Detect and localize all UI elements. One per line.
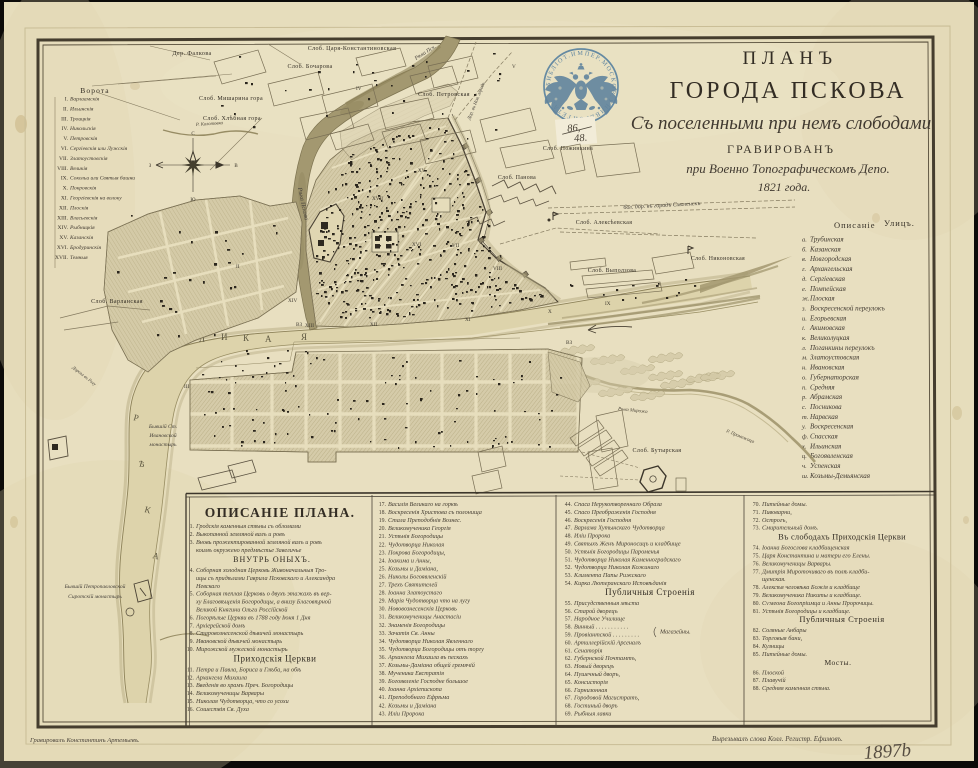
svg-text:59.: 59. [565, 633, 573, 639]
svg-text:Ворота: Ворота [80, 86, 109, 95]
svg-text:Петровскія: Петровскія [69, 136, 98, 142]
svg-text:Старой дворецъ: Старой дворецъ [574, 608, 618, 615]
svg-text:72.: 72. [753, 518, 761, 524]
svg-text:Ивановская: Ивановская [809, 364, 844, 372]
svg-text:3.: 3. [190, 540, 195, 546]
svg-text:Дер. Фалкова: Дер. Фалкова [172, 51, 211, 57]
svg-text:IV: IV [356, 86, 362, 92]
svg-text:Климента Папы Рижскаго: Климента Папы Рижскаго [573, 572, 646, 579]
svg-text:Іоанна Архіепископа: Іоанна Архіепископа [387, 686, 442, 693]
svg-text:30.: 30. [379, 607, 387, 613]
svg-text:Слоб. Алексѣевская: Слоб. Алексѣевская [576, 219, 633, 226]
svg-text:14.: 14. [187, 691, 195, 697]
svg-text:22.: 22. [379, 542, 387, 548]
svg-text:60.: 60. [565, 640, 573, 646]
svg-text:Святыхъ Женъ Мироносицъ и клад: Святыхъ Женъ Мироносицъ и кладбище [574, 541, 681, 548]
svg-text:А: А [265, 334, 272, 344]
svg-text:Чудотворца Николая Кожинаго: Чудотворца Николая Кожинаго [574, 564, 659, 571]
svg-text:Чудотворца Богородицы отъ торг: Чудотворца Богородицы отъ торгу [388, 646, 484, 653]
svg-text:Покровскія: Покровскія [69, 186, 97, 192]
svg-text:е.: е. [802, 286, 807, 293]
svg-text:Козьмы и Даміана: Козьмы и Даміана [387, 702, 436, 709]
svg-text:Сиротскій монастырь: Сиротскій монастырь [68, 593, 122, 600]
svg-text:55.: 55. [565, 601, 573, 607]
svg-text:17.: 17. [379, 502, 387, 508]
svg-text:Ильинская: Ильинская [809, 442, 841, 450]
svg-text:Плоская: Плоская [809, 295, 835, 303]
svg-text:Слоб. Бочарова: Слоб. Бочарова [287, 63, 332, 70]
svg-text:в.: в. [802, 256, 807, 263]
svg-text:Сѵмеона Богопріимца и Анны Про: Сѵмеона Богопріимца и Анны Пророчицы. [762, 600, 874, 607]
svg-text:5.: 5. [190, 592, 195, 598]
svg-text:Зачатія Св. Анны: Зачатія Св. Анны [388, 630, 435, 637]
svg-text:IX.: IX. [61, 176, 69, 182]
svg-text:Мученика Евстратія: Мученика Евстратія [387, 670, 444, 677]
svg-text:Николы Богоявленскій: Николы Богоявленскій [387, 573, 447, 580]
svg-text:Средняя: Средняя [810, 383, 835, 391]
svg-text:74.: 74. [753, 546, 761, 552]
svg-text:82.: 82. [753, 628, 761, 634]
svg-text:XV: XV [418, 168, 426, 174]
svg-text:Приходскія Церкви: Приходскія Церкви [234, 653, 317, 663]
svg-text:Казанская: Казанская [809, 245, 841, 253]
svg-text:1821 года.: 1821 года. [758, 180, 811, 194]
svg-text:Стала Преподобнія Вознес.: Стала Преподобнія Вознес. [388, 517, 461, 524]
svg-text:58.: 58. [565, 625, 573, 631]
svg-text:Ю: Ю [190, 198, 195, 203]
svg-text:VI.: VI. [61, 146, 69, 152]
svg-text:56.: 56. [565, 609, 573, 615]
svg-text:Архангельская: Архангельская [809, 265, 853, 273]
svg-text:Вырезывалъ слова Колл. Реги: Вырезывалъ слова Колл. Регистр. Ефимовъ. [712, 735, 843, 743]
svg-text:III: III [184, 384, 189, 390]
svg-text:70.: 70. [753, 502, 761, 508]
svg-text:при Военно Топографическомъ Де: при Военно Топографическомъ Депо. [686, 161, 889, 176]
svg-text:45.: 45. [565, 510, 573, 516]
svg-text:Іоанна Богослова кладбищенская: Іоанна Богослова кладбищенская [761, 545, 850, 552]
svg-text:Старовознесенской дѣвичей мо: Старовознесенской дѣвичей монастырь [196, 630, 304, 637]
svg-text:40.: 40. [379, 687, 387, 693]
svg-text:Плоскія: Плоскія [69, 205, 89, 211]
svg-text:44.: 44. [565, 502, 573, 508]
svg-text:Великолуцкая: Великолуцкая [810, 334, 850, 342]
svg-text:31.: 31. [379, 615, 387, 621]
svg-text:76.: 76. [753, 561, 761, 567]
svg-text:Никольскія: Никольскія [69, 126, 96, 132]
svg-text:7.: 7. [190, 623, 195, 629]
svg-text:ш.: ш. [802, 473, 809, 480]
svg-text:Богоявленская: Богоявленская [809, 452, 853, 460]
svg-text:37.: 37. [379, 663, 387, 669]
svg-text:Публичныя Строенія: Публичныя Строенія [605, 587, 695, 597]
svg-text:коимъ окружено предмѣстье З: коимъ окружено предмѣстье Завеличье [196, 547, 302, 554]
svg-text:Присудственныя мѣста: Присудственныя мѣста [573, 600, 639, 607]
svg-text:43.: 43. [379, 711, 387, 717]
svg-text:Воскресенія Христова съ полони: Воскресенія Христова съ полонища [388, 509, 482, 516]
svg-text:84.: 84. [753, 644, 761, 650]
svg-text:Слоб. Бутырская: Слоб. Бутырская [633, 447, 682, 454]
svg-text:Вновь прожектированной землян: Вновь прожектированной земляной валъ и р… [196, 539, 323, 546]
svg-text:Улицъ.: Улицъ. [884, 218, 915, 228]
svg-text:48.: 48. [574, 133, 588, 145]
svg-text:ц.: ц. [802, 453, 807, 460]
svg-text:Іоакима и Анны,: Іоакима и Анны, [387, 557, 432, 564]
svg-text:19.: 19. [379, 518, 387, 524]
svg-text:Преподобнаго Ефрѣма: Преподобнаго Ефрѣма [387, 694, 449, 701]
svg-text:ОПИСАНІЕ ПЛАНА.: ОПИСАНІЕ ПЛАНА. [205, 505, 355, 520]
svg-text:29.: 29. [379, 599, 387, 605]
svg-text:Сергіевскія или Лужскія: Сергіевскія или Лужскія [70, 146, 128, 152]
svg-text:Ивановской: Ивановской [148, 432, 176, 439]
svg-text:Златоустовская: Златоустовская [810, 354, 859, 362]
svg-text:Георгіевскія на волоку: Георгіевскія на волоку [69, 196, 122, 202]
svg-text:Острогъ,: Острогъ, [762, 517, 787, 524]
svg-text:Новый дворецъ: Новый дворецъ [573, 663, 615, 670]
svg-text:75.: 75. [753, 554, 761, 560]
svg-text:XVI: XVI [412, 242, 421, 248]
svg-text:монастырь: монастырь [148, 442, 177, 448]
svg-text:Мосты.: Мосты. [825, 658, 852, 667]
svg-text:Народное Училище: Народное Училище [573, 616, 625, 623]
svg-text:39.: 39. [379, 679, 387, 685]
svg-text:XV.: XV. [59, 235, 68, 241]
svg-text:V.: V. [63, 136, 68, 142]
svg-text:Трубинская: Трубинская [810, 236, 844, 244]
svg-text:Чудотворца Николая Каменноград: Чудотворца Николая Каменноградскаго [574, 556, 681, 563]
svg-text:Успенская: Успенская [810, 462, 841, 470]
svg-text:Выкопанной земляной валъ и: Выкопанной земляной валъ и ровъ [196, 531, 286, 538]
svg-text:Погорѣлые Церкви въ 1788 году: Погорѣлые Церкви въ 1788 году Іюня 1 Дня [195, 614, 311, 621]
svg-text:Златоустовскія: Златоустовскія [70, 156, 108, 162]
svg-text:Бывшій Ст.: Бывшій Ст. [148, 423, 177, 430]
svg-text:53.: 53. [565, 573, 573, 579]
svg-text:і.: і. [802, 325, 806, 332]
svg-text:Архангела Михаила: Архангела Михаила [195, 674, 247, 681]
svg-text:16.: 16. [187, 707, 195, 713]
svg-text:К: К [243, 333, 250, 343]
svg-text:Дмитрія Мироточиваго въ полѣ к: Дмитрія Мироточиваго въ полѣ кладби- [761, 568, 869, 575]
svg-text:Воскресенія Господня: Воскресенія Господня [574, 517, 631, 524]
svg-text:Губернаторская: Губернаторская [809, 373, 859, 381]
svg-text:Ивановской дѣвичей монастырь: Ивановской дѣвичей монастырь [195, 638, 282, 645]
svg-text:Казанскія: Казанскія [69, 235, 94, 241]
svg-text:Сошествія Св. Духа: Сошествія Св. Духа [196, 706, 249, 713]
svg-text:Сокольи или Святыя башни: Сокольи или Святыя башни [70, 175, 135, 182]
svg-text:20.: 20. [379, 526, 387, 532]
svg-text:Нововознесенскія Церковь: Нововознесенскія Церковь [387, 606, 457, 613]
svg-text:ГОРОДА ПСКОВА: ГОРОДА ПСКОВА [670, 78, 907, 104]
svg-text:Я: Я [301, 332, 307, 342]
svg-text:Чудотворца Николая Явленнаго: Чудотворца Николая Явленнаго [388, 638, 473, 645]
svg-text:Царя Константина и матери его: Царя Константина и матери его Елены. [761, 553, 870, 560]
svg-text:48.: 48. [565, 534, 573, 540]
svg-text:р.: р. [801, 394, 807, 401]
svg-text:XII.: XII. [59, 205, 69, 211]
svg-text:50.: 50. [565, 549, 573, 555]
svg-text:Марія Чудотворца что на лугу: Марія Чудотворца что на лугу [387, 598, 470, 605]
svg-text:IX: IX [605, 301, 611, 307]
svg-text:23.: 23. [379, 550, 387, 556]
svg-text:Губернской Почтамтъ,: Губернской Почтамтъ, [573, 655, 637, 662]
svg-text:36.: 36. [379, 655, 387, 661]
svg-text:Архангела Михаила въ пескахъ: Архангела Михаила въ пескахъ [387, 654, 469, 661]
svg-text:Слоб. Пожинкина: Слоб. Пожинкина [543, 145, 593, 152]
svg-text:Въ слободахъ Приходскія Церкви: Въ слободахъ Приходскія Церкви [778, 532, 906, 542]
svg-text:о.: о. [802, 374, 807, 381]
svg-text:Воскресенская: Воскресенская [810, 423, 853, 431]
svg-text:Кузницы: Кузницы [761, 643, 784, 650]
svg-text:Успѣнія Богородицы: Успѣнія Богородицы [388, 533, 443, 540]
svg-text:Слоб. Панова: Слоб. Панова [498, 174, 536, 181]
svg-text:73.: 73. [753, 526, 761, 532]
svg-text:Бывшій Петропавловской: Бывшій Петропавловской [64, 583, 126, 590]
svg-text:V: V [512, 64, 516, 70]
svg-text:Артиллерійскій Арсеналъ: Артиллерійскій Арсеналъ [573, 639, 642, 646]
svg-text:Бродуринскія: Бродуринскія [69, 244, 102, 251]
svg-text:Съ поселенными при немъ слобод: Съ поселенными при немъ слободами [631, 113, 932, 134]
svg-text:34.: 34. [379, 639, 387, 645]
svg-text:Козьмы-Даміана общей гремячій: Козьмы-Даміана общей гремячій [387, 662, 476, 669]
svg-text:Козьмы-Демьянская: Козьмы-Демьянская [809, 472, 870, 480]
svg-text:ицы съ придѣлами Гаврила Псков: ицы съ придѣлами Гаврила Псковскаго и Ал… [196, 575, 335, 582]
svg-text:ф.: ф. [802, 434, 809, 441]
svg-text:62.: 62. [565, 656, 573, 662]
svg-text:Спасо Преображенія Господня: Спасо Преображенія Господня [574, 509, 656, 516]
svg-text:Ильинскія: Ильинскія [69, 106, 94, 112]
svg-text:XI: XI [465, 317, 471, 323]
svg-text:Пушечный дворъ,: Пушечный дворъ, [573, 671, 621, 678]
svg-text:Гарнизонная: Гарнизонная [573, 687, 607, 694]
svg-text:Великомученицы Варвары: Великомученицы Варвары [196, 690, 264, 697]
svg-text:46.: 46. [565, 518, 573, 524]
svg-text:Слоб. Хлѣбная гора: Слоб. Хлѣбная гора [203, 115, 261, 122]
svg-text:ВНУТРЬ ОНЫХЪ.: ВНУТРЬ ОНЫХЪ. [233, 555, 311, 564]
svg-text:Варлаамскія: Варлаамскія [70, 97, 100, 103]
svg-text:8.: 8. [190, 631, 195, 637]
svg-text:ж.: ж. [802, 296, 810, 303]
svg-text:69.: 69. [565, 712, 573, 718]
svg-text:Слоб. Мишарина гора: Слоб. Мишарина гора [199, 95, 263, 102]
svg-text:79.: 79. [753, 593, 761, 599]
svg-text:38.: 38. [379, 671, 387, 677]
svg-text:ч.: ч. [802, 463, 807, 470]
svg-text:Слоб. Выползова: Слоб. Выползова [588, 267, 636, 274]
svg-text:Егорьевская: Егорьевская [809, 314, 846, 322]
svg-text:Торговыя бани,: Торговыя бани, [762, 635, 803, 642]
svg-text:Петра и Павла, Бориса и Глѣба,: Петра и Павла, Бориса и Глѣба, на обѣ [195, 666, 301, 673]
svg-text:Архіерейской домъ: Архіерейской домъ [195, 622, 246, 629]
svg-text:12.: 12. [187, 675, 195, 681]
svg-text:87.: 87. [753, 678, 761, 684]
svg-text:Соляные Анбары: Соляные Анбары [762, 627, 807, 634]
svg-text:Рыбницкія: Рыбницкія [69, 224, 95, 231]
svg-text:Сенаторія: Сенаторія [574, 647, 602, 654]
svg-text:Сергіевская: Сергіевская [810, 275, 845, 283]
svg-text:Публичныя Строенія: Публичныя Строенія [799, 614, 884, 624]
svg-text:Консисторія: Консисторія [573, 679, 608, 686]
svg-text:52.: 52. [565, 565, 573, 571]
svg-text:ГРАВИРОВАНЪ: ГРАВИРОВАНЪ [727, 142, 835, 156]
svg-text:Покрова Богородицы,: Покрова Богородицы, [387, 549, 446, 556]
svg-text:4.: 4. [190, 568, 195, 574]
svg-text:Средняя каменная стѣна.: Средняя каменная стѣна. [762, 685, 831, 692]
svg-text:Питейные домы.: Питейные домы. [761, 651, 807, 658]
svg-text:з.: з. [801, 305, 807, 312]
svg-text:XIII.: XIII. [57, 215, 68, 221]
svg-text:54.: 54. [565, 581, 573, 587]
svg-text:Винный . . . . . . . . . . .: Винный . . . . . . . . . . . [574, 624, 628, 631]
svg-text:Темныя: Темныя [70, 255, 88, 261]
svg-text:XI.: XI. [61, 196, 69, 202]
svg-text:м.: м. [801, 355, 808, 362]
svg-text:Козьмы и Даміана,: Козьмы и Даміана, [387, 565, 438, 572]
svg-text:л.: л. [801, 345, 807, 352]
svg-text:42.: 42. [379, 703, 387, 709]
svg-text:13.: 13. [187, 683, 195, 689]
svg-text:Рыбныя лавки: Рыбныя лавки [573, 711, 611, 718]
svg-text:Гродскія каменныя стѣны съ обл: Гродскія каменныя стѣны съ обломами [195, 523, 301, 530]
svg-text:Соборная холодная Церковь Живо: Соборная холодная Церковь Живоначальныя … [196, 567, 326, 574]
svg-text:Трехъ Святителей: Трехъ Святителей [388, 582, 438, 589]
svg-text:с.: с. [802, 404, 807, 411]
svg-text:X: X [548, 309, 552, 315]
svg-text:47.: 47. [565, 526, 573, 532]
svg-text:Посникова: Посникова [809, 403, 842, 411]
svg-text:Великомученицы Анастасіи: Великомученицы Анастасіи [388, 614, 461, 621]
svg-text:11.: 11. [187, 667, 195, 673]
svg-text:Гостиный дворъ: Гостиный дворъ [573, 703, 618, 710]
svg-text:71.: 71. [753, 510, 761, 516]
svg-text:Питейные домы.: Питейные домы. [761, 501, 807, 508]
svg-text:Плоской: Плоской [761, 669, 785, 676]
svg-text:Богоявленіе Господне большое: Богоявленіе Господне большое [387, 678, 468, 685]
svg-text:68.: 68. [565, 704, 573, 710]
svg-text:Спасская: Спасская [810, 433, 838, 441]
svg-text:Успѣнія Богородицы Пароменья: Успѣнія Богородицы Пароменья [574, 548, 660, 555]
svg-text:6.: 6. [190, 615, 195, 621]
svg-text:Акимовская: Акимовская [809, 324, 845, 332]
svg-text:86.: 86. [753, 670, 761, 676]
svg-text:Великія: Великія [70, 166, 88, 172]
svg-text:Троицкія: Троицкія [70, 116, 91, 122]
svg-text:Воскресенской переулокъ: Воскресенской переулокъ [810, 304, 885, 312]
svg-text:51.: 51. [565, 557, 573, 563]
svg-text:1897b: 1897b [863, 740, 912, 764]
svg-text:Новгородская: Новгородская [809, 255, 851, 263]
svg-text:у.: у. [801, 424, 806, 431]
svg-text:И: И [221, 332, 228, 342]
svg-text:67.: 67. [565, 696, 573, 702]
svg-text:Слоб. Никоновская: Слоб. Никоновская [691, 255, 745, 262]
svg-text:9.: 9. [190, 639, 195, 645]
svg-text:XIV: XIV [288, 298, 297, 304]
svg-text:2.: 2. [190, 532, 195, 538]
svg-text:41.: 41. [379, 695, 387, 701]
svg-text:ху Благовѣщенія Богородицы, а: ху Благовѣщенія Богородицы, а внизу Благ… [195, 599, 332, 606]
svg-text:85.: 85. [753, 652, 761, 658]
svg-text:Великомученика Георгія: Великомученика Георгія [388, 525, 451, 532]
svg-text:а.: а. [802, 237, 807, 244]
svg-text:78.: 78. [753, 585, 761, 591]
svg-text:IV.: IV. [62, 126, 69, 132]
svg-text:Іоанна Златоустаго: Іоанна Златоустаго [387, 590, 442, 597]
svg-text:Слоб. Царя-Константиновская: Слоб. Царя-Константиновская [308, 45, 397, 52]
svg-text:XII: XII [370, 322, 377, 328]
svg-text:18.: 18. [379, 510, 387, 516]
svg-text:Провіантской . . . . . . . . .: Провіантской . . . . . . . . . [573, 632, 639, 639]
svg-text:VIII: VIII [493, 266, 502, 272]
svg-text:ВЗ: ВЗ [566, 340, 572, 346]
svg-text:33.: 33. [379, 631, 387, 637]
svg-text:1.: 1. [190, 524, 195, 530]
svg-text:63.: 63. [565, 664, 573, 670]
svg-text:88.: 88. [753, 686, 761, 692]
svg-text:80.: 80. [753, 601, 761, 607]
svg-text:61.: 61. [565, 648, 573, 654]
svg-text:Городовой Магистратъ,: Городовой Магистратъ, [573, 695, 640, 702]
svg-text:Пивоварни,: Пивоварни, [761, 509, 792, 516]
svg-text:н.: н. [802, 365, 807, 372]
svg-text:Невскаго: Невскаго [195, 583, 220, 590]
svg-text:т.: т. [802, 414, 809, 421]
svg-text:Нарвская: Нарвская [809, 413, 838, 421]
svg-text:Плавучій: Плавучій [761, 677, 786, 684]
svg-text:к.: к. [802, 335, 807, 342]
svg-text:21.: 21. [379, 534, 387, 540]
svg-text:и.: и. [802, 315, 807, 322]
svg-text:Слоб. Петровская: Слоб. Петровская [418, 91, 470, 98]
svg-text:Помпейская: Помпейская [809, 285, 846, 293]
svg-text:Великой Княгини Ольги Россі: Великой Княгини Ольги Россійской [196, 607, 288, 614]
svg-text:II.: II. [63, 106, 69, 112]
svg-text:Слоб. Варланская: Слоб. Варланская [91, 298, 143, 305]
svg-text:66.: 66. [565, 688, 573, 694]
svg-text:Мирожской мужеской монастырь: Мирожской мужеской монастырь [195, 646, 288, 653]
svg-text:XVII.: XVII. [55, 255, 69, 261]
svg-text:VII: VII [452, 243, 459, 249]
svg-text:д.: д. [802, 276, 807, 283]
svg-text:Власьевскія: Власьевскія [70, 215, 98, 221]
svg-text:26.: 26. [379, 574, 387, 580]
svg-text:XVII: XVII [372, 196, 383, 202]
svg-text:83.: 83. [753, 636, 761, 642]
svg-text:10.: 10. [187, 647, 195, 653]
svg-text:Описаніе: Описаніе [834, 220, 876, 230]
svg-text:27.: 27. [379, 583, 387, 589]
svg-text:28.: 28. [379, 591, 387, 597]
svg-text:XIV.: XIV. [58, 225, 69, 231]
svg-text:ВЗ: ВЗ [296, 322, 302, 328]
svg-text:Введенія во храмъ Преч. Богоро: Введенія во храмъ Преч. Богородицы [196, 682, 293, 689]
svg-text:Гравировалъ Константинъ Арте: Гравировалъ Константинъ Артемьевъ. [29, 737, 140, 744]
svg-text:Василія Великаго на горкѣ: Василія Великаго на горкѣ [388, 501, 458, 508]
svg-text:24.: 24. [379, 558, 387, 564]
svg-text:п.: п. [802, 384, 807, 391]
svg-text:Абрамская: Абрамская [809, 393, 842, 401]
svg-text:г.: г. [802, 266, 806, 273]
svg-text:65.: 65. [565, 680, 573, 686]
svg-text:II: II [236, 264, 240, 270]
svg-text:64.: 64. [565, 672, 573, 678]
svg-text:III.: III. [61, 116, 68, 122]
svg-text:Алексѣя человѣка Божія и кладб: Алексѣя человѣка Божія и кладбище [761, 584, 860, 591]
svg-text:Магазейны.: Магазейны. [659, 629, 691, 636]
svg-text:Поганкины переулокъ: Поганкины переулокъ [809, 344, 875, 352]
svg-text:57.: 57. [565, 617, 573, 623]
svg-text:Знаменія Богородицы: Знаменія Богородицы [388, 622, 445, 629]
svg-text:Иліи Пророка: Иліи Пророка [387, 710, 424, 717]
svg-text:VII.: VII. [59, 156, 69, 162]
